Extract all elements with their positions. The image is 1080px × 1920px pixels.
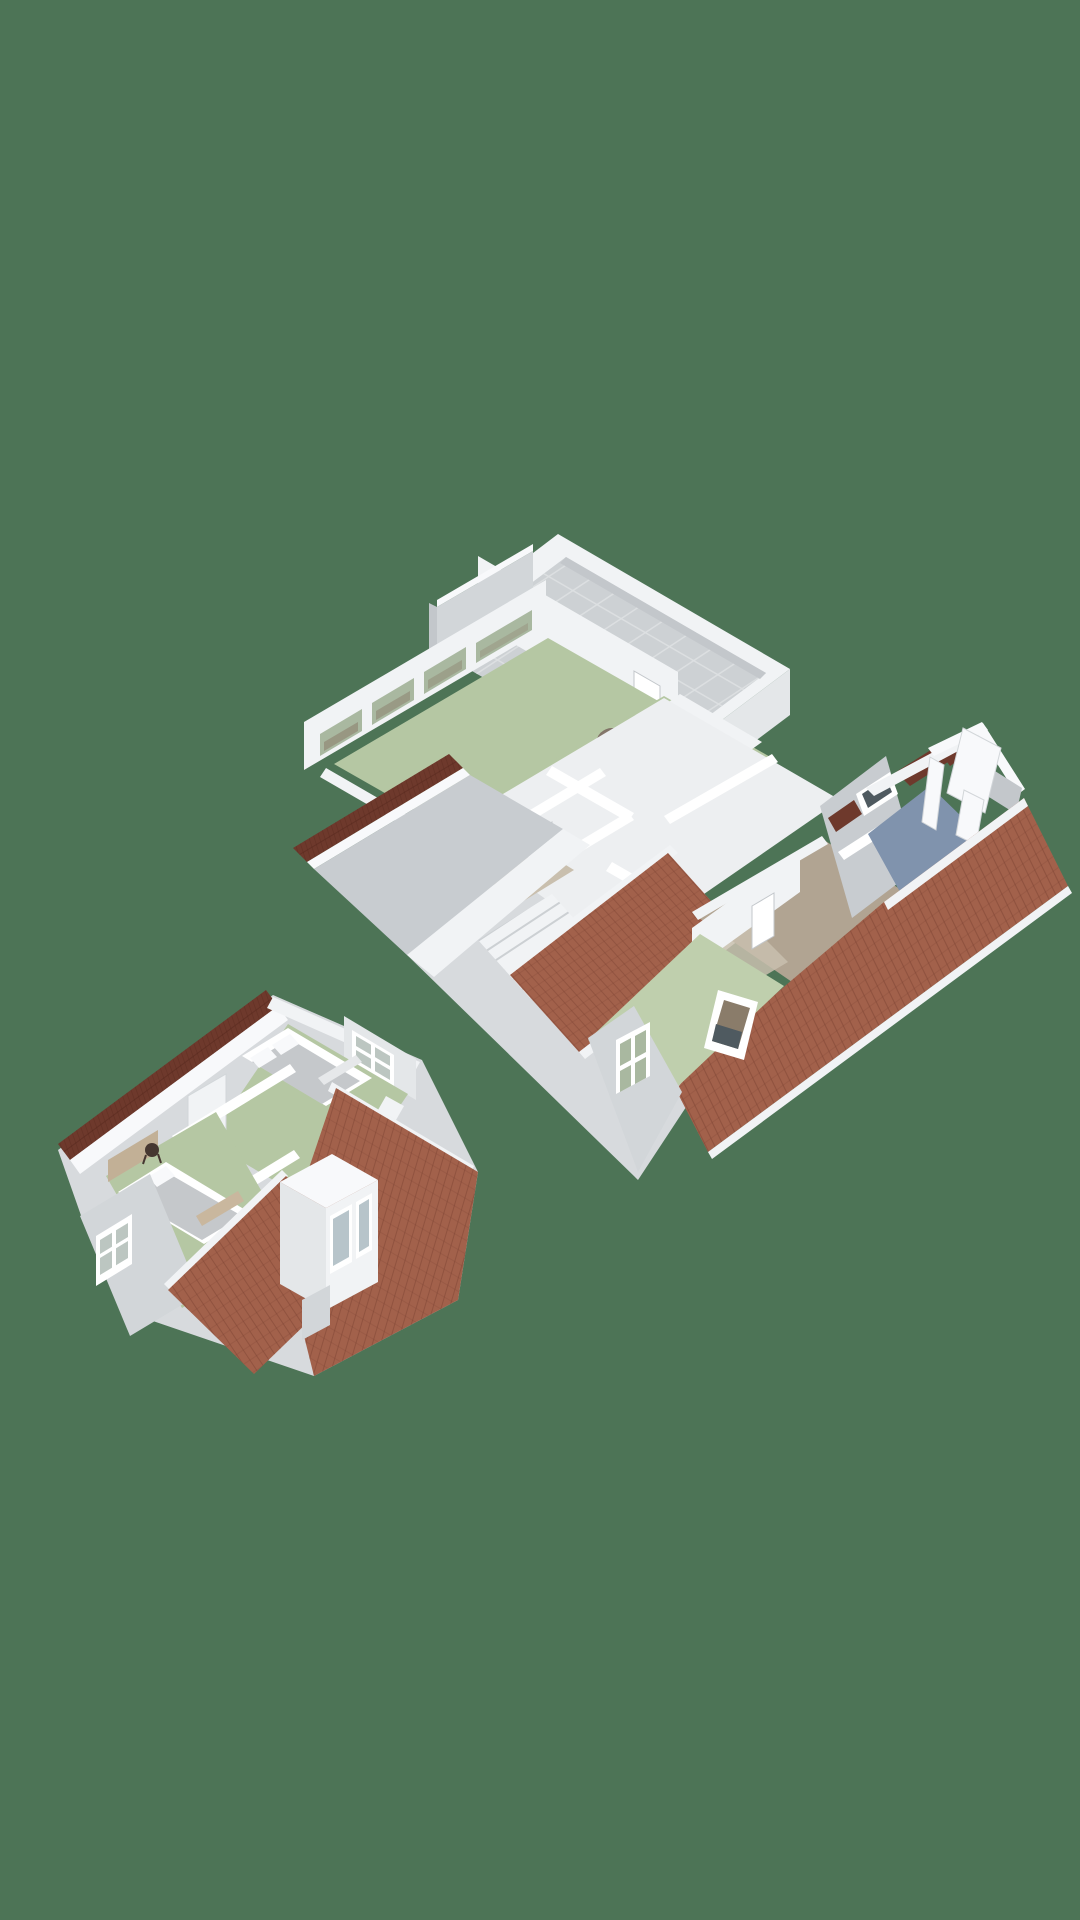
floorplan-canvas [0,0,1080,1920]
dormer-window-glass [359,1199,369,1252]
dormer-window-glass [333,1210,349,1266]
stool [145,1143,159,1157]
